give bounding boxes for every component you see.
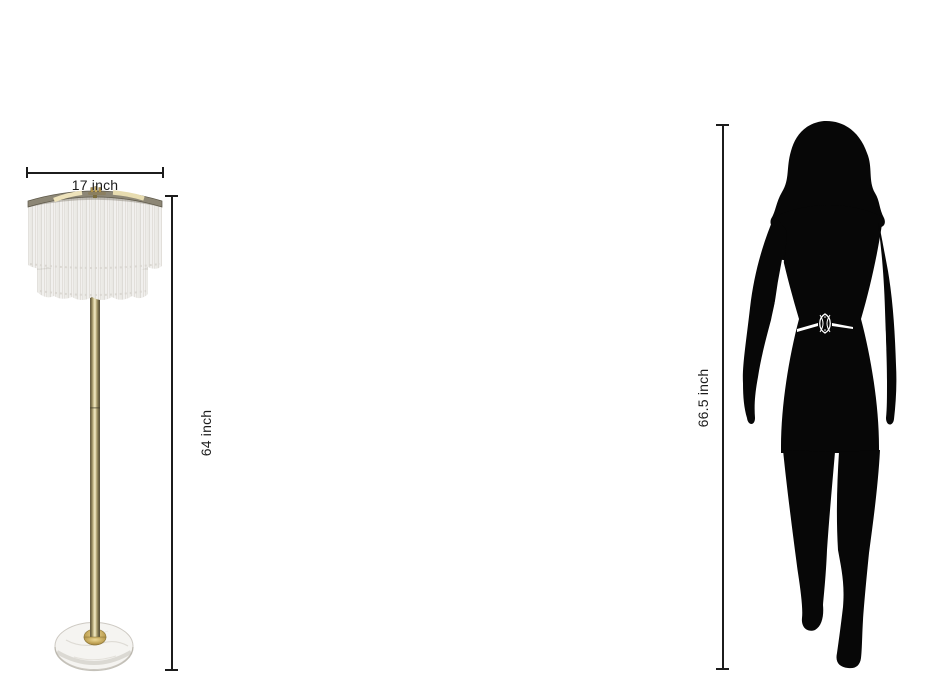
lamp-pole [90, 296, 100, 642]
woman-silhouette [727, 105, 933, 700]
person-height-cap-top [716, 124, 729, 126]
lamp-width-cap-left [26, 167, 28, 178]
lamp-width-label: 17 inch [43, 177, 147, 193]
lamp-height-cap-bottom [165, 669, 178, 671]
lamp-width-cap-right [162, 167, 164, 178]
lamp-height-label: 64 inch [198, 383, 214, 483]
person-height-dimension-line [722, 125, 724, 670]
silhouette-right-leg [836, 450, 880, 668]
floor-lamp-illustration [10, 160, 185, 680]
silhouette-left-leg [783, 450, 835, 631]
person-height-label: 66.5 inch [695, 348, 711, 448]
lamp-height-cap-top [165, 195, 178, 197]
lamp-height-dimension-line [171, 196, 173, 671]
lamp-fringe-tier-1 [28, 197, 162, 271]
size-comparison-image: 17 inch 64 inch 66.5 inch [0, 0, 933, 700]
person-height-cap-bottom [716, 668, 729, 670]
silhouette-right-arm [878, 223, 896, 425]
silhouette-left-arm [743, 217, 787, 424]
lamp-width-dimension-line [27, 172, 163, 174]
